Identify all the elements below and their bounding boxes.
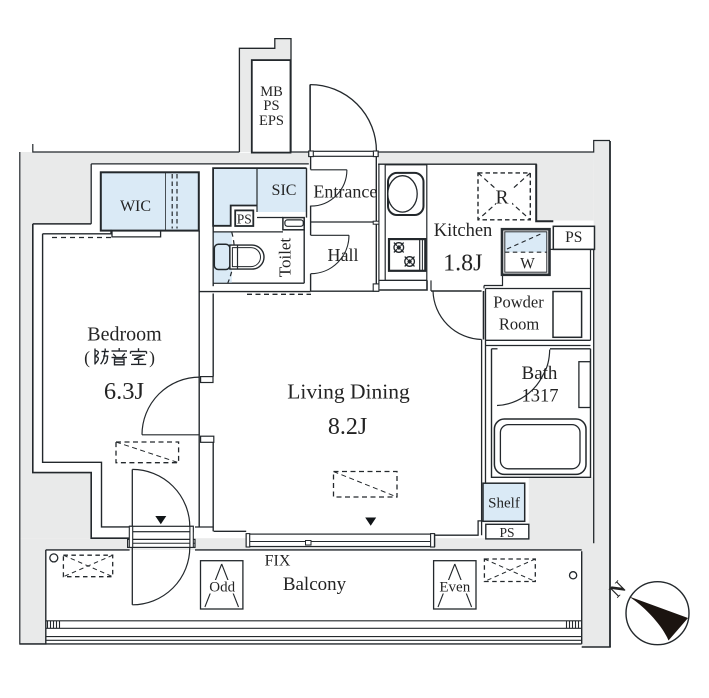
svg-text:Room: Room	[499, 315, 540, 334]
svg-text:6.3J: 6.3J	[104, 378, 145, 405]
svg-text:Toilet: Toilet	[276, 238, 295, 278]
svg-text:Living Dining: Living Dining	[287, 380, 410, 404]
svg-text:1317: 1317	[522, 387, 559, 407]
svg-text:Balcony: Balcony	[283, 574, 347, 595]
svg-text:(: (	[84, 348, 90, 368]
svg-text:PS: PS	[263, 98, 279, 114]
svg-text:Bedroom: Bedroom	[87, 324, 162, 346]
svg-text:Kitchen: Kitchen	[434, 221, 493, 241]
svg-text:Even: Even	[439, 580, 470, 596]
svg-text:PS: PS	[499, 525, 514, 540]
svg-text:W: W	[520, 256, 535, 273]
svg-text:Shelf: Shelf	[488, 496, 520, 512]
svg-text:WIC: WIC	[120, 198, 151, 215]
svg-text:Bath: Bath	[522, 363, 558, 384]
svg-text:Odd: Odd	[209, 580, 235, 596]
svg-text:R: R	[495, 188, 508, 209]
svg-text:1.8J: 1.8J	[443, 251, 482, 277]
svg-text:Powder: Powder	[493, 293, 544, 312]
svg-text:Hall: Hall	[328, 245, 359, 265]
svg-text:SIC: SIC	[272, 182, 297, 199]
svg-text:): )	[149, 348, 155, 368]
svg-text:PS: PS	[237, 212, 252, 227]
svg-text:8.2J: 8.2J	[328, 414, 367, 440]
svg-text:FIX: FIX	[265, 553, 291, 570]
svg-text:Entrance: Entrance	[313, 182, 377, 202]
svg-text:PS: PS	[565, 229, 582, 246]
svg-text:EPS: EPS	[259, 113, 284, 129]
